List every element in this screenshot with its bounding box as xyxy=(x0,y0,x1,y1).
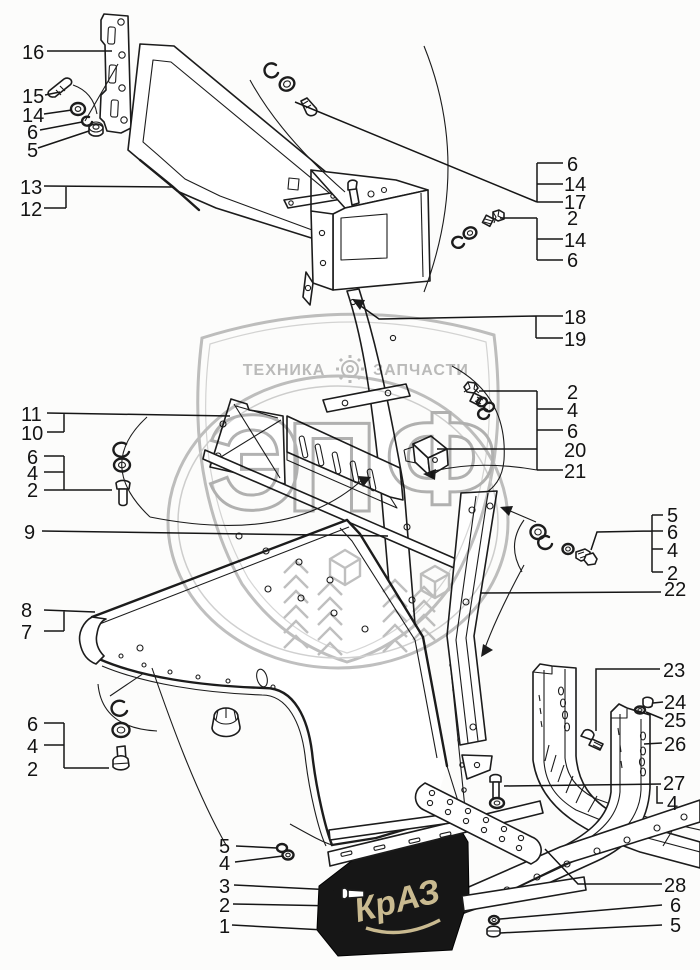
svg-text:4: 4 xyxy=(567,400,578,422)
svg-text:25: 25 xyxy=(664,710,686,732)
svg-text:16: 16 xyxy=(22,42,44,64)
svg-text:1: 1 xyxy=(219,916,230,938)
svg-text:18: 18 xyxy=(564,307,586,329)
svg-text:9: 9 xyxy=(24,522,35,544)
svg-text:ТЕХНИКА: ТЕХНИКА xyxy=(243,362,326,379)
svg-text:10: 10 xyxy=(21,423,43,445)
svg-text:13: 13 xyxy=(20,177,42,199)
svg-text:2: 2 xyxy=(27,759,38,781)
svg-text:6: 6 xyxy=(567,250,578,272)
svg-text:21: 21 xyxy=(564,461,586,483)
svg-text:2: 2 xyxy=(27,480,38,502)
svg-text:19: 19 xyxy=(564,329,586,351)
svg-text:4: 4 xyxy=(27,736,38,758)
svg-text:28: 28 xyxy=(664,875,686,897)
svg-text:14: 14 xyxy=(564,230,586,252)
svg-text:2: 2 xyxy=(219,895,230,917)
svg-text:12: 12 xyxy=(20,199,42,221)
svg-text:27: 27 xyxy=(663,773,685,795)
svg-text:4: 4 xyxy=(219,853,230,875)
svg-text:4: 4 xyxy=(667,793,678,815)
svg-text:7: 7 xyxy=(21,622,32,644)
svg-text:26: 26 xyxy=(664,734,686,756)
svg-text:6: 6 xyxy=(567,154,578,176)
svg-text:6: 6 xyxy=(670,895,681,917)
svg-text:2: 2 xyxy=(567,208,578,230)
svg-text:23: 23 xyxy=(663,660,685,682)
svg-text:8: 8 xyxy=(21,600,32,622)
svg-text:5: 5 xyxy=(670,915,681,937)
svg-text:4: 4 xyxy=(667,540,678,562)
svg-text:5: 5 xyxy=(27,140,38,162)
svg-text:22: 22 xyxy=(664,579,686,601)
svg-text:20: 20 xyxy=(564,440,586,462)
svg-text:Ф: Ф xyxy=(385,385,498,532)
svg-text:ЗАПЧАСТИ: ЗАПЧАСТИ xyxy=(373,362,469,379)
svg-text:П: П xyxy=(286,396,377,538)
svg-text:6: 6 xyxy=(27,714,38,736)
